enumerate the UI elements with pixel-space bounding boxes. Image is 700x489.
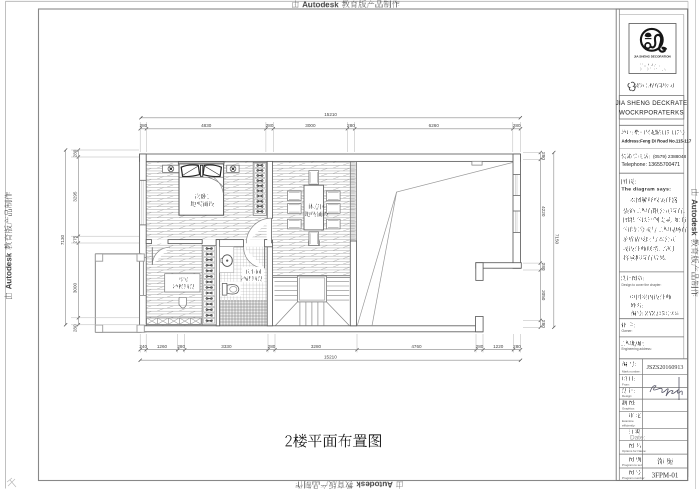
svg-text:JSZS20160913: JSZS20160913 <box>647 365 684 371</box>
svg-text:The diagram says:: The diagram says: <box>622 186 672 192</box>
svg-text:280: 280 <box>73 149 78 157</box>
svg-text:280: 280 <box>268 344 276 349</box>
svg-text:280: 280 <box>541 152 546 160</box>
svg-text:280: 280 <box>266 123 274 128</box>
svg-text:280: 280 <box>476 344 484 349</box>
svg-text:Owner:: Owner: <box>622 329 633 333</box>
svg-text:Program number:: Program number: <box>622 476 646 480</box>
svg-text:1220: 1220 <box>493 344 504 349</box>
svg-text:7150: 7150 <box>555 234 560 245</box>
svg-text:(0579) 2388048: (0579) 2388048 <box>653 154 686 159</box>
svg-text:2050: 2050 <box>541 290 546 301</box>
svg-text:15210: 15210 <box>324 112 337 117</box>
svg-text:240: 240 <box>139 344 147 349</box>
svg-text:3280: 3280 <box>311 344 322 349</box>
svg-text:Telephone: 13655700471: Telephone: 13655700471 <box>622 162 681 168</box>
svg-text:WOCKRPORATERKS: WOCKRPORATERKS <box>619 110 684 117</box>
svg-text:Address:Feng Di Road No.115-11: Address:Feng Di Road No.115-117 <box>622 139 692 144</box>
svg-text:Engineering address:: Engineering address: <box>622 347 652 351</box>
svg-text:3330: 3330 <box>221 344 232 349</box>
svg-text:280: 280 <box>541 263 546 271</box>
svg-text:Options for Name:: Options for Name: <box>622 449 647 453</box>
svg-text:3000: 3000 <box>305 123 316 128</box>
svg-text:Date:: Date: <box>630 435 645 442</box>
svg-text:4830: 4830 <box>201 123 212 128</box>
svg-text:4220: 4220 <box>541 206 546 217</box>
svg-text:JIA SHENG DECORATION: JIA SHENG DECORATION <box>634 55 671 59</box>
svg-text:15210: 15210 <box>324 354 337 359</box>
svg-text:280: 280 <box>347 123 355 128</box>
svg-text:4760: 4760 <box>411 344 422 349</box>
svg-text:280: 280 <box>177 344 185 349</box>
svg-text:280: 280 <box>513 123 521 128</box>
svg-text:JIA SHENG DECKRATE: JIA SHENG DECKRATE <box>616 100 688 107</box>
svg-text:efficiently:: efficiently: <box>622 423 635 427</box>
svg-text:Mark number:: Mark number: <box>622 369 641 373</box>
svg-text:6260: 6260 <box>429 123 440 128</box>
svg-text:1260: 1260 <box>157 344 168 349</box>
svg-text:280: 280 <box>541 320 546 328</box>
svg-text:280: 280 <box>513 344 521 349</box>
svg-text:3000: 3000 <box>73 282 78 293</box>
svg-text:3FPM-01: 3FPM-01 <box>652 471 679 479</box>
svg-text:Program to set:: Program to set: <box>622 463 643 467</box>
svg-text:Design to cover the chapter:: Design to cover the chapter: <box>622 283 662 287</box>
svg-text:7130: 7130 <box>60 234 65 245</box>
svg-text:280: 280 <box>73 324 78 332</box>
svg-text:From:: From: <box>622 383 630 387</box>
svg-text:275: 275 <box>73 235 78 243</box>
svg-text:3295: 3295 <box>73 191 78 202</box>
svg-text:Graphics:: Graphics: <box>622 406 635 410</box>
svg-text:Design:: Design: <box>622 394 632 398</box>
svg-text:280: 280 <box>140 123 148 128</box>
